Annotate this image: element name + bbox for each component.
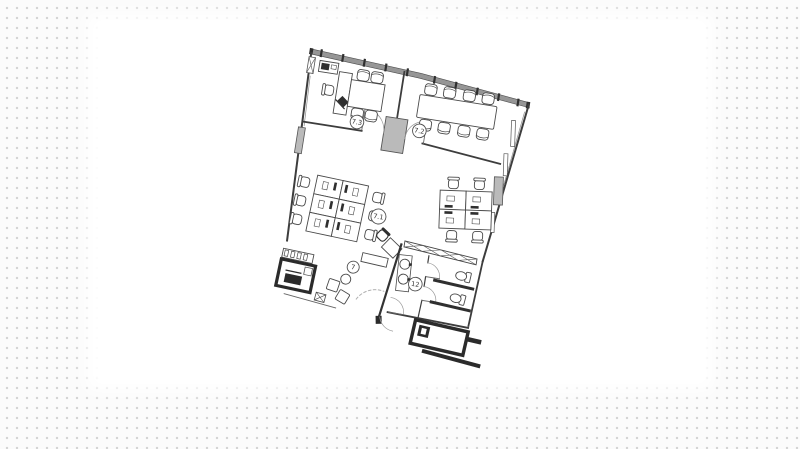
chair <box>437 122 451 135</box>
task-chair <box>321 83 334 96</box>
chair <box>364 110 378 123</box>
credenza <box>361 253 388 268</box>
task-chair <box>472 231 484 243</box>
rail <box>283 294 336 308</box>
chair <box>357 69 371 82</box>
toilet <box>455 270 472 283</box>
svg-text:7.1: 7.1 <box>373 212 384 222</box>
stall-door <box>422 286 438 302</box>
meeting-table <box>347 80 385 112</box>
column <box>493 177 503 205</box>
desk-cluster-right <box>438 177 492 244</box>
task-chair <box>289 212 303 226</box>
lounge-zone: 7 <box>274 248 361 311</box>
restroom-12: 12 <box>387 240 484 329</box>
chair <box>476 128 490 141</box>
task-chair <box>446 230 458 242</box>
chair <box>457 125 471 138</box>
kitchenette <box>276 259 316 293</box>
chair <box>463 89 477 102</box>
cabinet <box>318 60 338 74</box>
svg-text:12: 12 <box>411 280 420 289</box>
room-7-2: 7.2 <box>412 82 499 149</box>
desk-cluster-left <box>288 171 386 245</box>
toilet <box>449 292 466 306</box>
chair <box>481 92 495 105</box>
svg-text:7.2: 7.2 <box>414 126 425 136</box>
radiator <box>503 154 508 176</box>
entrance-door-arc-dashed <box>356 287 384 303</box>
crossed-box-icon <box>314 292 326 302</box>
duct-shaft-icon <box>307 57 316 74</box>
chair <box>424 83 438 96</box>
room-7-3: 7.3 <box>310 60 387 132</box>
task-chair <box>293 194 307 208</box>
central-column <box>381 116 408 153</box>
task-chair <box>364 228 378 242</box>
floor-plan-canvas: 7.3 7.2 <box>0 0 800 449</box>
task-chair <box>473 178 485 190</box>
stair-core <box>410 320 483 359</box>
zone-label-7: 7 <box>346 260 360 274</box>
pouf <box>326 278 340 292</box>
braced-wall <box>403 241 478 265</box>
stall-door <box>426 263 442 279</box>
entrance-door-arc <box>378 317 395 331</box>
task-chair <box>372 191 386 205</box>
coffee-table <box>340 273 351 284</box>
column <box>294 127 305 154</box>
task-chair <box>447 177 459 189</box>
chair <box>443 86 457 99</box>
svg-text:7.3: 7.3 <box>351 118 362 128</box>
chair <box>370 71 384 84</box>
radiator <box>511 120 516 146</box>
task-chair <box>297 175 311 189</box>
floor-plan: 7.3 7.2 <box>265 48 533 368</box>
